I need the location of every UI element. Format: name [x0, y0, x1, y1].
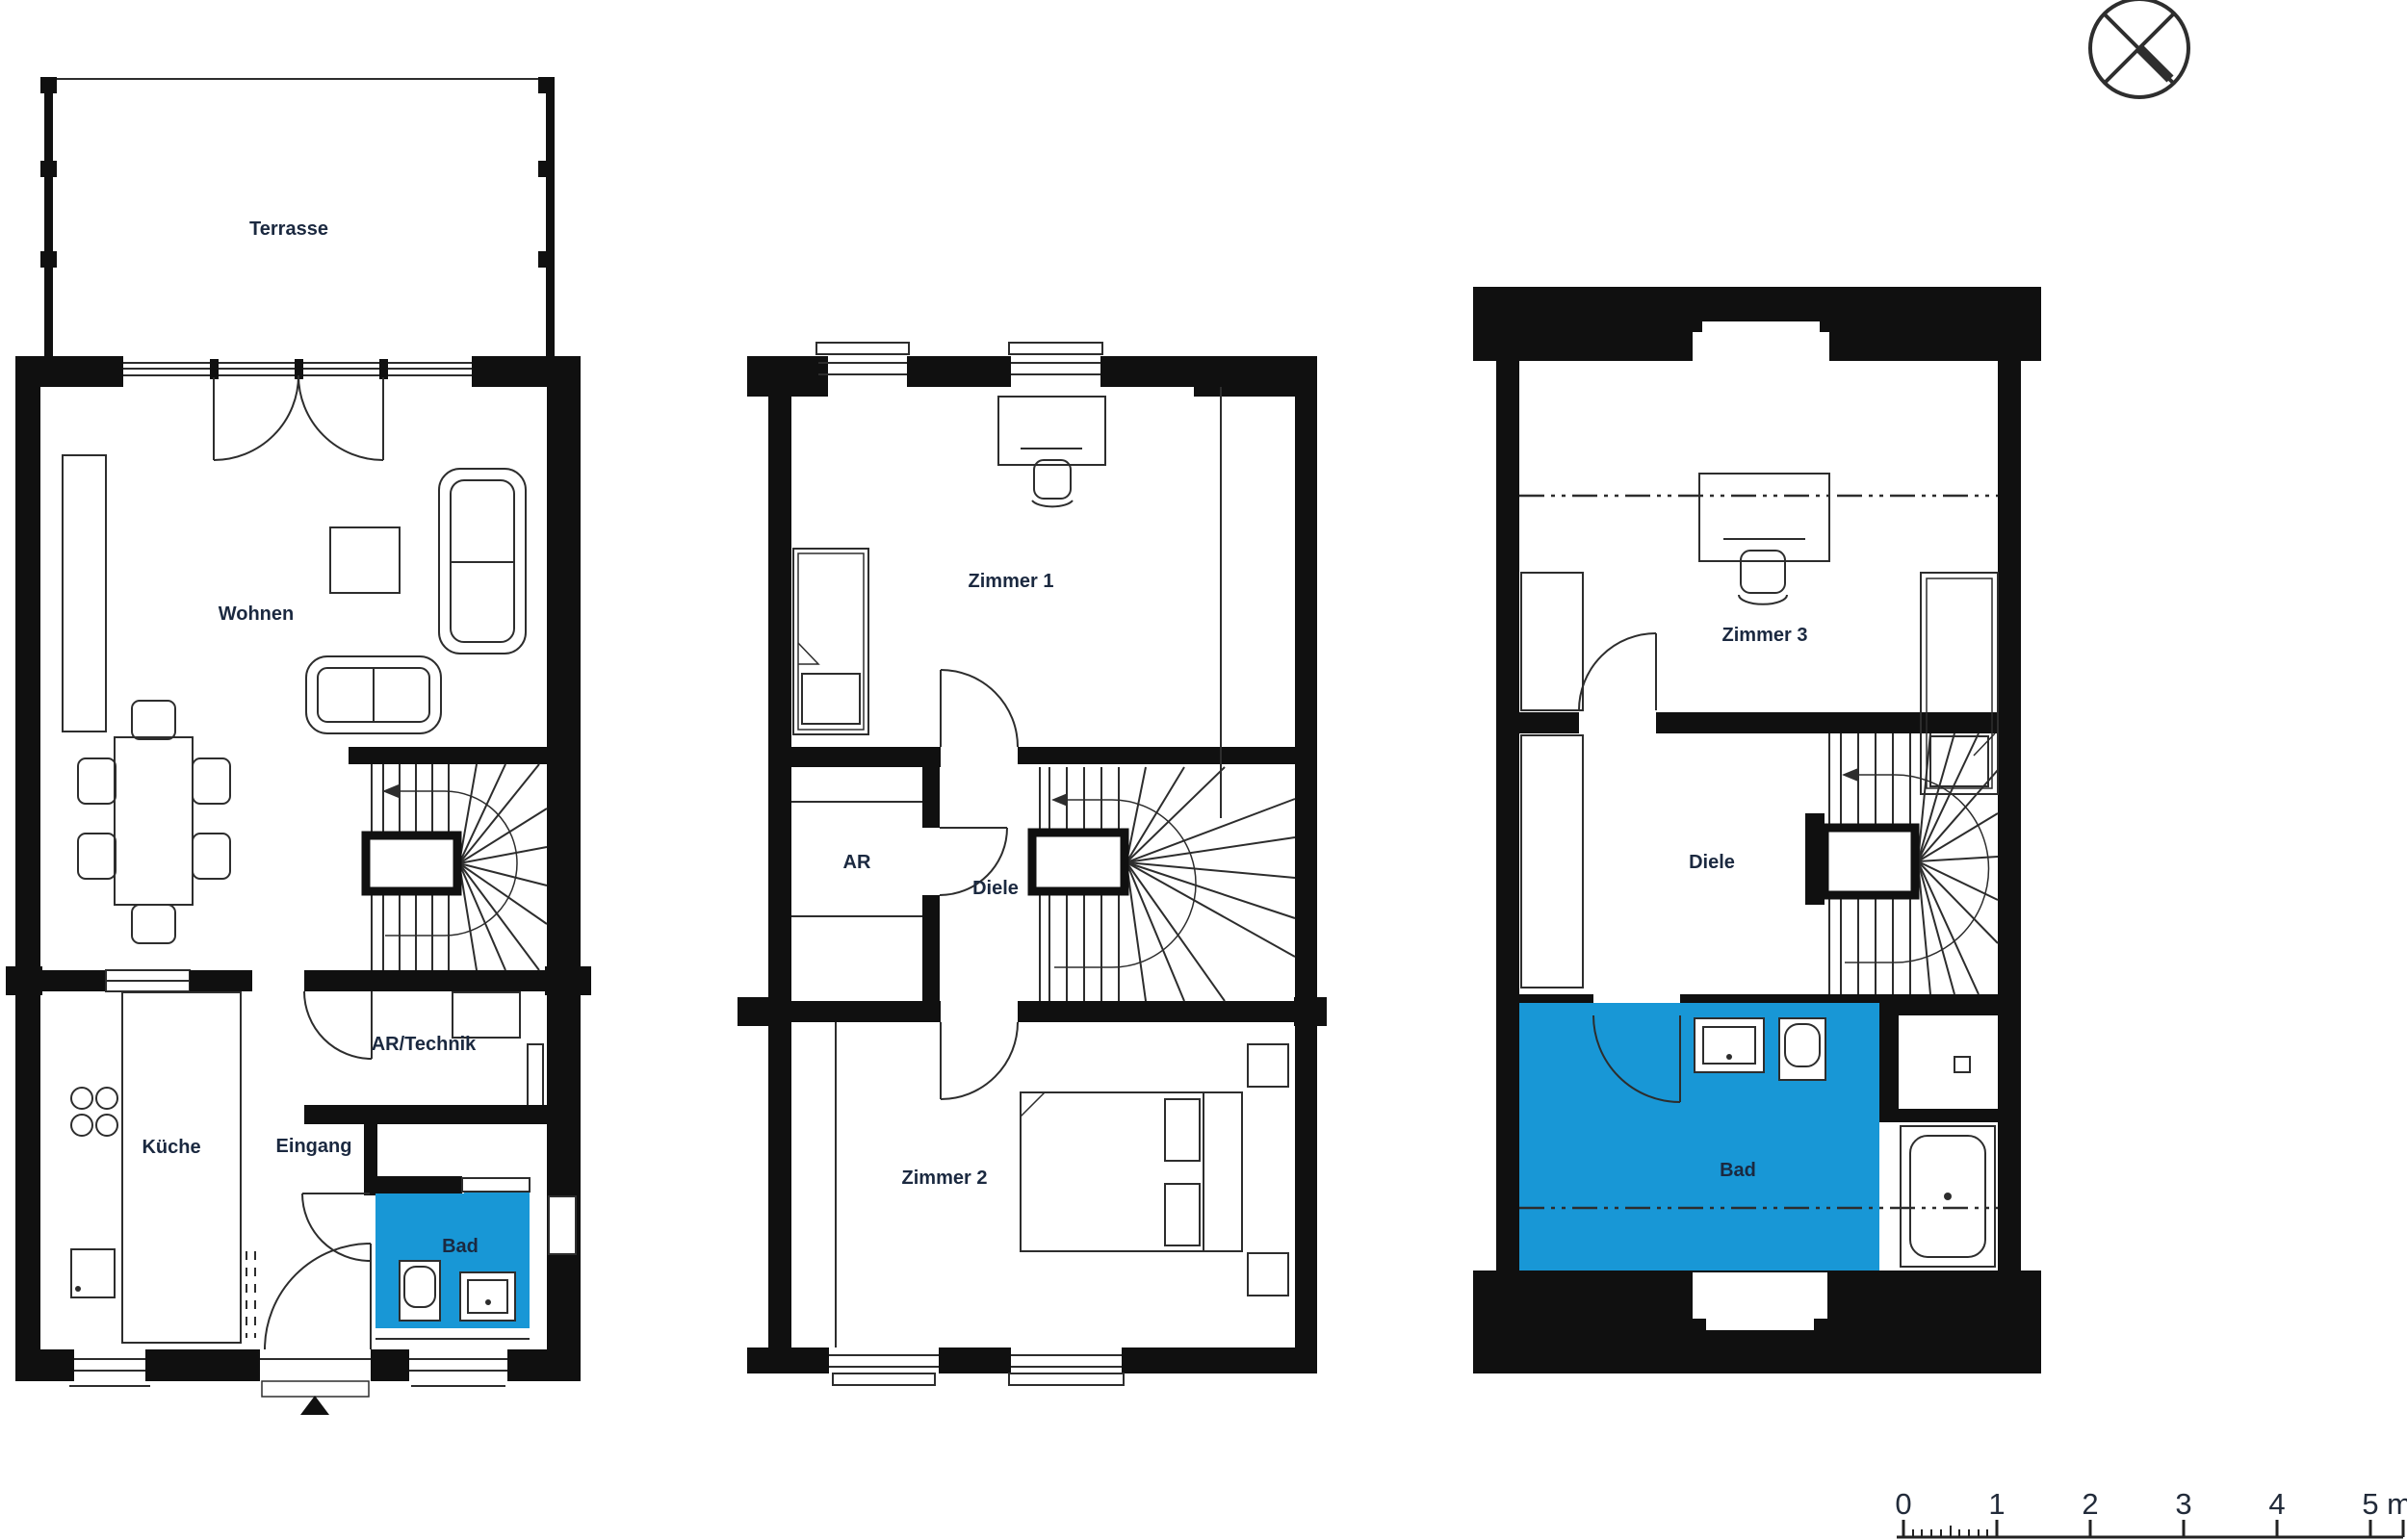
hallway-attic: Diele	[1521, 735, 1735, 988]
technik-door	[304, 991, 372, 1059]
floorplan-attic: Zimmer 3 Diele	[1473, 287, 2041, 1373]
bedroom-1-door	[941, 670, 1018, 747]
room-label-zimmer-2: Zimmer 2	[902, 1168, 988, 1189]
terrace-door-and-glazing	[123, 359, 472, 460]
floorplan-canvas: Terrasse	[0, 0, 2407, 1540]
cooktop	[71, 1088, 117, 1136]
scale-bar-minor-ticks	[1913, 1526, 1987, 1537]
room-label-zimmer-1: Zimmer 1	[969, 571, 1054, 592]
loveseat	[306, 656, 441, 733]
bedroom-2-door	[941, 1022, 1018, 1099]
staircase	[349, 747, 547, 970]
bedroom-2: Zimmer 2	[836, 1022, 1288, 1347]
nightstand	[1248, 1044, 1288, 1087]
bathtub	[1901, 1126, 1995, 1267]
utility-shelf	[453, 992, 520, 1038]
bathroom-attic: Bad	[1519, 1003, 1998, 1270]
kitchen: Küche	[71, 992, 255, 1343]
dormer-window	[1693, 332, 1829, 361]
desk-chair	[1739, 551, 1787, 604]
sideboard	[63, 455, 106, 731]
floorplan-upper-floor: Zimmer 1 AR Diele	[738, 343, 1327, 1385]
toilet	[1779, 1018, 1825, 1080]
room-label-bad-eg: Bad	[442, 1236, 479, 1257]
room-label-eingang: Eingang	[276, 1136, 352, 1157]
stair-void	[1825, 828, 1915, 895]
shower-drain	[1954, 1057, 1970, 1072]
room-label-wohnen: Wohnen	[219, 603, 295, 625]
scale-label-3: 3	[2175, 1487, 2191, 1521]
bathroom-door	[302, 1193, 370, 1261]
scale-label-2: 2	[2082, 1487, 2098, 1521]
utility-duct	[528, 1044, 543, 1114]
shower	[1879, 1003, 1998, 1122]
kitchen-counter	[122, 992, 241, 1343]
wardrobe	[1521, 573, 1583, 710]
coffee-table	[330, 527, 400, 593]
kitchen-sink	[71, 1249, 115, 1297]
floorplan-ground-floor: Terrasse	[6, 77, 591, 1415]
nightstand	[1248, 1253, 1288, 1296]
sofa	[439, 469, 526, 654]
floor-plan-sheet: Terrasse	[0, 0, 2407, 1540]
scale-unit: m	[2387, 1487, 2407, 1521]
desk	[1699, 474, 1829, 561]
stair-void	[366, 835, 457, 891]
north-indicator-icon	[2090, 0, 2188, 97]
scale-bar: 0 1 2 3 4 5 m	[1895, 1487, 2407, 1537]
room-label-ar-technik: AR/Technik	[372, 1034, 477, 1055]
scale-label-1: 1	[1988, 1487, 2005, 1521]
bedroom-3-door	[1579, 633, 1656, 710]
staircase	[1825, 733, 1998, 994]
desk-chair	[1032, 460, 1073, 506]
utility-room: AR/Technik	[304, 992, 547, 1195]
scale-label-5: 5	[2362, 1487, 2378, 1521]
stair-direction-arrow-icon	[1842, 768, 1858, 782]
room-label-kueche: Küche	[142, 1137, 200, 1158]
dormer-window	[1693, 1272, 1827, 1319]
closet	[1521, 735, 1583, 988]
washbasin	[460, 1272, 515, 1321]
entrance-hall: Eingang	[260, 991, 372, 1415]
room-label-diele-dg: Diele	[1689, 852, 1735, 873]
ground-floor-windows	[69, 1359, 507, 1386]
desk	[998, 397, 1105, 465]
bathroom-ground-floor: Bad	[302, 1176, 576, 1339]
entrance-arrow-icon	[300, 1396, 329, 1415]
room-label-terrasse: Terrasse	[249, 218, 328, 240]
toilet	[400, 1261, 440, 1321]
room-label-zimmer-3: Zimmer 3	[1722, 625, 1808, 646]
scale-label-0: 0	[1895, 1487, 1911, 1521]
bedroom-3: Zimmer 3	[1521, 474, 1998, 794]
room-label-diele-og: Diele	[972, 878, 1019, 899]
double-bed	[1021, 1092, 1242, 1251]
hallway-upper: Diele	[972, 878, 1019, 899]
single-bed	[793, 549, 868, 734]
room-label-bad-dg: Bad	[1720, 1160, 1756, 1181]
room-label-ar: AR	[843, 852, 871, 873]
bathroom-window	[549, 1196, 576, 1254]
stair-void	[1032, 833, 1125, 891]
interior-structural-wall	[6, 966, 591, 995]
scale-label-4: 4	[2268, 1487, 2285, 1521]
single-bed	[1921, 573, 1998, 794]
terrace: Terrasse	[40, 77, 555, 358]
washbasin	[1695, 1018, 1764, 1072]
stair-direction-arrow-icon	[382, 784, 399, 798]
staircase	[1032, 767, 1295, 1001]
storage-room: AR	[791, 802, 1007, 916]
stair-direction-arrow-icon	[1051, 793, 1068, 807]
dining-table-set	[78, 701, 230, 943]
entrance-step	[262, 1381, 369, 1397]
